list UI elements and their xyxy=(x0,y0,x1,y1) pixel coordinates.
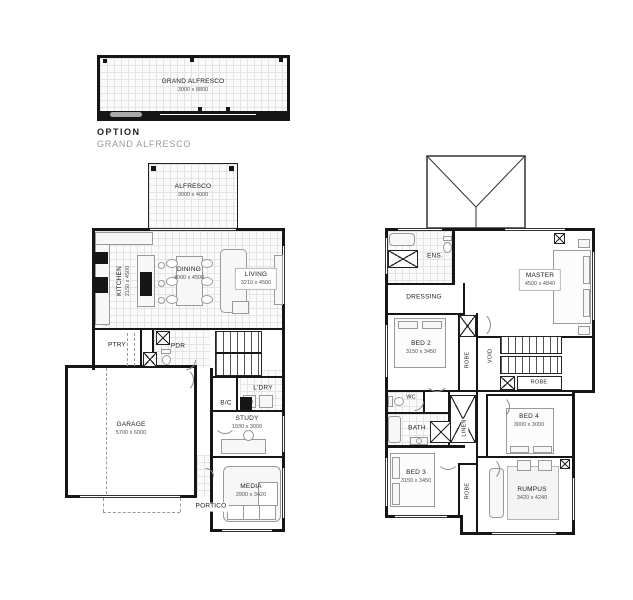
stool-icon xyxy=(158,262,165,269)
wall xyxy=(210,376,285,378)
door-arc xyxy=(170,368,194,392)
kitchen-bench xyxy=(95,232,153,245)
robe2-label: ROBE xyxy=(464,352,471,368)
pillow-icon xyxy=(533,446,552,453)
pillow-icon xyxy=(392,483,400,505)
desk xyxy=(221,439,266,454)
basin-icon xyxy=(416,438,422,444)
window xyxy=(385,325,388,377)
dressing-label: DRESSING xyxy=(406,294,442,303)
window xyxy=(282,468,285,518)
staircase-upper-flight xyxy=(500,336,562,354)
pillow-icon xyxy=(422,321,442,329)
door-arc xyxy=(214,412,236,434)
kitchen-label: KITCHEN 2150 x 4500 xyxy=(116,266,132,296)
bathtub xyxy=(388,416,401,443)
ensuite-label: ENS. xyxy=(427,253,443,262)
wall xyxy=(385,283,455,285)
pillow-icon xyxy=(583,256,590,284)
wall xyxy=(236,378,238,410)
pantry-label: PTRY xyxy=(108,342,126,351)
door-arc xyxy=(437,448,459,470)
window xyxy=(222,529,272,532)
driveway-dashed-line xyxy=(103,498,104,512)
master-label: MASTER 4500 x 4840 xyxy=(519,269,561,291)
bath-label: BATH xyxy=(408,425,426,434)
option-title: OPTION xyxy=(97,127,141,137)
post-icon xyxy=(279,58,283,62)
wall xyxy=(476,390,478,445)
dining-label: DINING 4000 x 4500 xyxy=(174,266,204,282)
stool-icon xyxy=(158,297,165,304)
roof-gable xyxy=(426,155,526,229)
wall xyxy=(385,445,465,448)
toilet-icon xyxy=(161,349,171,354)
driveway-dashed-line xyxy=(180,498,181,512)
window xyxy=(398,228,442,231)
cooktop-icon xyxy=(140,272,152,296)
wall xyxy=(452,228,455,285)
toilet-icon xyxy=(388,396,393,407)
wall xyxy=(458,463,478,465)
sliding-door xyxy=(150,228,236,231)
armchair-icon xyxy=(538,460,552,471)
staircase xyxy=(215,331,262,376)
wall xyxy=(463,283,465,315)
wall xyxy=(385,313,465,315)
overhang-dashed-line xyxy=(106,368,107,494)
bed2-label: BED 2 3150 x 3450 xyxy=(406,340,436,356)
option-subtitle: GRAND ALFRESCO xyxy=(97,139,191,149)
cushion-divider xyxy=(243,505,244,520)
floor-plan-canvas: GRAND ALFRESCO 3000 x 8800 OPTION GRAND … xyxy=(0,0,633,600)
staircase-lower-flight xyxy=(500,356,562,374)
door-arc xyxy=(478,458,500,480)
toilet-icon xyxy=(394,397,404,406)
sofa-chaise xyxy=(232,301,249,314)
column-icon xyxy=(554,233,565,244)
driveway-dashed-line xyxy=(103,512,180,513)
bed3-label: BED 3 3150 x 3450 xyxy=(401,469,431,485)
deck-line xyxy=(160,114,256,115)
pantry-shelf-dashed xyxy=(134,333,135,366)
linen-label: LINEN xyxy=(461,418,468,437)
window xyxy=(592,252,595,320)
study-label: STUDY 1930 x 3000 xyxy=(232,415,262,431)
office-chair-icon xyxy=(243,430,254,441)
toilet-icon xyxy=(162,355,171,365)
void-label: VOID xyxy=(487,349,494,363)
shower-icon xyxy=(430,421,452,443)
living-label: LIVING 3210 x 4500 xyxy=(235,268,277,290)
pillow-icon xyxy=(583,289,590,317)
wall xyxy=(476,445,478,535)
window xyxy=(385,458,388,506)
toilet-icon xyxy=(443,242,452,253)
dishwasher-icon xyxy=(95,277,108,293)
window xyxy=(395,515,447,518)
pantry-shelf-dashed xyxy=(127,333,128,366)
stool-icon xyxy=(158,280,165,287)
laundry-label: L'DRY xyxy=(253,385,272,394)
pillow-icon xyxy=(392,457,400,479)
post-icon xyxy=(151,166,156,171)
grand-alfresco-label: GRAND ALFRESCO 3000 x 8800 xyxy=(162,78,225,94)
window xyxy=(572,478,575,520)
cushion-divider xyxy=(259,505,260,520)
cupboard-icon xyxy=(500,376,515,390)
post-icon xyxy=(190,58,194,62)
robe3-label: ROBE xyxy=(464,483,471,499)
door-arc xyxy=(488,396,510,418)
post-icon xyxy=(226,107,230,111)
media-label: MEDIA 2900 x 3420 xyxy=(236,483,266,499)
cupboard-icon xyxy=(156,331,170,345)
wall xyxy=(210,456,285,458)
powder-label: PDR xyxy=(171,343,185,352)
rumpus-label: RUMPUS 3420 x 4240 xyxy=(517,486,547,502)
hot-water-unit-icon xyxy=(240,397,252,410)
roof-gable-svg xyxy=(426,155,526,229)
window xyxy=(492,532,556,535)
door-arc xyxy=(425,368,449,392)
bed4-label: BED 4 3000 x 3000 xyxy=(514,413,544,429)
pillow-icon xyxy=(398,321,418,329)
alfresco-label: ALFRESCO 3000 x 4000 xyxy=(175,183,212,199)
wall xyxy=(572,390,595,393)
stair-landing-line xyxy=(215,352,262,354)
robe-icon xyxy=(459,315,476,337)
pillow-icon xyxy=(510,446,529,453)
oven-icon xyxy=(95,252,108,264)
step-icon xyxy=(110,112,142,117)
bathtub xyxy=(389,233,415,246)
media-sofa-cushions xyxy=(227,505,276,520)
portico-label: PORTICO xyxy=(194,503,229,512)
wall xyxy=(140,330,142,368)
garage-label: GARAGE 5700 x 6000 xyxy=(116,421,146,437)
armchair-icon xyxy=(517,460,531,471)
toilet-icon xyxy=(443,236,452,241)
window xyxy=(282,416,285,452)
post-icon xyxy=(103,59,107,63)
window xyxy=(505,228,565,231)
chair-icon xyxy=(166,295,178,304)
bc-label: B/C xyxy=(220,400,231,409)
wall xyxy=(458,463,460,517)
wall xyxy=(92,328,282,330)
post-icon xyxy=(198,107,202,111)
wall xyxy=(385,412,453,414)
robe-stairs-label: ROBE xyxy=(531,379,547,386)
bedside-table xyxy=(578,239,590,248)
bedside-table xyxy=(578,326,590,335)
shower-icon xyxy=(388,250,418,268)
column-icon xyxy=(560,459,570,469)
post-icon xyxy=(229,166,234,171)
garage-door xyxy=(80,495,180,498)
chair-icon xyxy=(201,295,213,304)
washer-icon xyxy=(259,395,273,408)
wall xyxy=(65,365,68,498)
cupboard-icon xyxy=(143,352,157,367)
